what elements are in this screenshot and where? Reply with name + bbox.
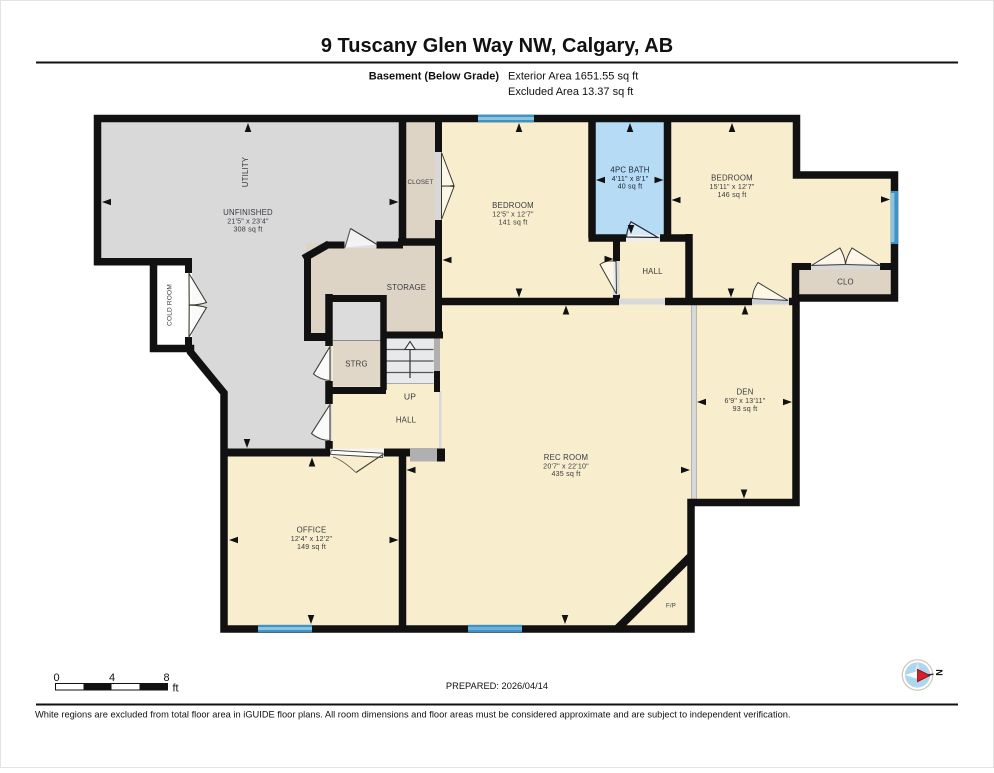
svg-text:149 sq ft: 149 sq ft [297,543,326,551]
svg-text:STORAGE: STORAGE [387,283,426,292]
svg-text:12'4" x 12'2": 12'4" x 12'2" [291,535,333,543]
svg-text:HALL: HALL [642,267,663,276]
svg-text:White regions are excluded fro: White regions are excluded from total fl… [35,710,791,720]
svg-text:20'7" x 22'10": 20'7" x 22'10" [543,462,589,470]
svg-text:DEN: DEN [736,388,753,397]
svg-text:40 sq ft: 40 sq ft [618,183,643,191]
svg-text:8: 8 [163,672,169,684]
svg-text:F/P: F/P [666,604,676,610]
svg-text:ft: ft [173,683,179,695]
svg-text:UNFINISHED: UNFINISHED [223,208,273,217]
svg-text:0: 0 [53,672,59,684]
svg-text:N: N [934,669,944,676]
svg-text:UTILITY: UTILITY [241,156,250,187]
svg-text:BEDROOM: BEDROOM [492,201,534,210]
svg-text:9 Tuscany Glen Way NW, Calgary: 9 Tuscany Glen Way NW, Calgary, AB [321,35,673,57]
svg-text:CLOSET: CLOSET [408,179,434,186]
svg-text:4'11" x 8'1": 4'11" x 8'1" [612,175,649,183]
svg-text:BEDROOM: BEDROOM [711,174,753,183]
svg-text:HALL: HALL [396,416,417,425]
svg-text:PREPARED: 2026/04/14: PREPARED: 2026/04/14 [446,681,548,691]
svg-text:435 sq ft: 435 sq ft [551,470,580,478]
svg-text:STRG: STRG [345,360,367,369]
svg-text:6'9" x 13'11": 6'9" x 13'11" [725,397,766,405]
svg-text:OFFICE: OFFICE [297,526,327,535]
svg-text:COLD ROOM: COLD ROOM [167,284,174,326]
svg-text:4: 4 [109,672,115,684]
svg-text:CLO: CLO [837,278,854,287]
svg-text:146 sq ft: 146 sq ft [717,191,746,199]
svg-text:141 sq ft: 141 sq ft [498,218,527,226]
svg-text:308 sq ft: 308 sq ft [233,226,262,234]
svg-text:93 sq ft: 93 sq ft [733,405,758,413]
svg-text:21'5" x 23'4": 21'5" x 23'4" [227,218,269,226]
svg-text:4PC BATH: 4PC BATH [610,166,649,175]
svg-text:Exterior Area 1651.55 sq ft: Exterior Area 1651.55 sq ft [508,71,638,83]
svg-text:15'11" x 12'7": 15'11" x 12'7" [709,183,754,191]
svg-text:Basement (Below Grade): Basement (Below Grade) [369,71,500,83]
svg-text:REC ROOM: REC ROOM [544,453,588,462]
svg-text:12'5" x 12'7": 12'5" x 12'7" [492,211,534,219]
svg-text:Excluded Area 13.37 sq ft: Excluded Area 13.37 sq ft [508,86,633,98]
svg-text:UP: UP [404,392,416,402]
